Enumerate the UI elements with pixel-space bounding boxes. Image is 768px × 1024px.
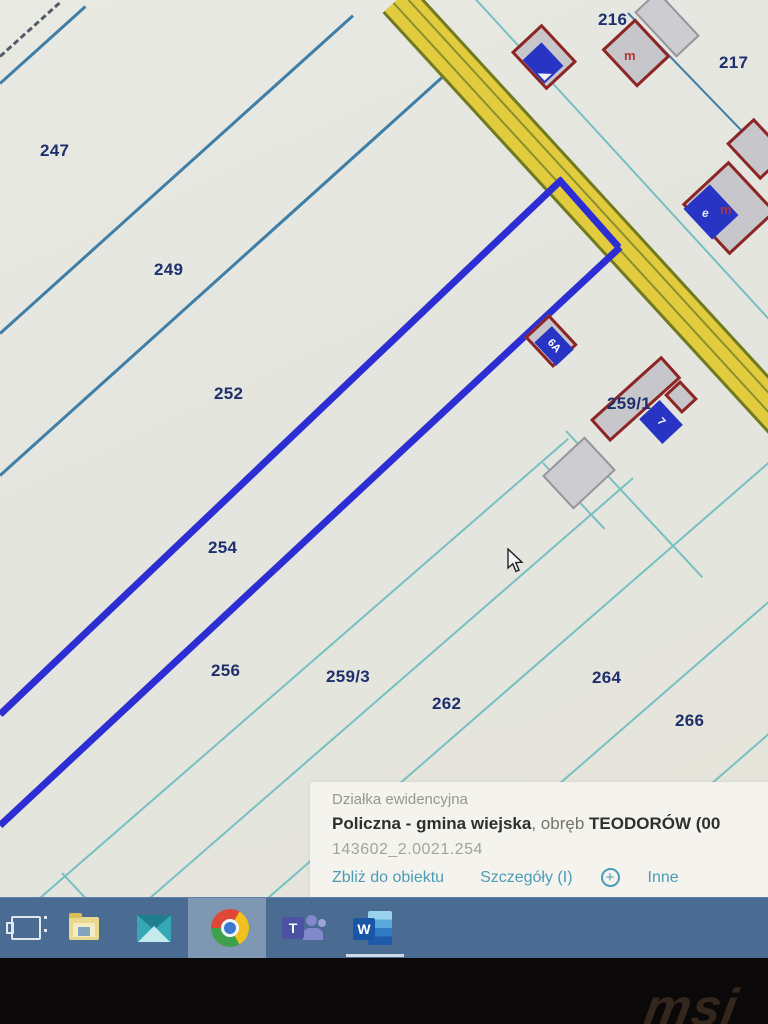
parcel-label-216: 216 [598, 10, 627, 30]
boundary-line-dashed [0, 2, 60, 58]
mail-button[interactable] [132, 898, 176, 958]
parcel-label-266: 266 [675, 711, 704, 731]
municipality-name: Policzna - gmina wiejska [332, 814, 531, 833]
boundary-line [0, 15, 354, 335]
msi-logo: msi [640, 978, 743, 1024]
parcel-id: 143602_2.0021.254 [332, 841, 768, 859]
mail-icon [137, 915, 171, 942]
task-view-icon [11, 916, 41, 940]
file-explorer-icon [69, 917, 99, 940]
cadastral-map[interactable]: m e m 6A 7 247 249 252 254 256 259/3 262… [0, 0, 768, 897]
chrome-icon [211, 909, 249, 947]
building-unclassified [542, 436, 616, 509]
teams-button[interactable]: T [280, 898, 328, 958]
building-function-label: e [702, 206, 709, 220]
parcel-type-label: Działka ewidencyjna [332, 791, 768, 808]
file-explorer-button[interactable] [62, 898, 106, 958]
parcel-label-259-3: 259/3 [326, 667, 370, 687]
obreb-label: , obręb [531, 814, 589, 833]
teams-icon: T [282, 910, 326, 946]
teams-person-head [306, 915, 317, 926]
word-button[interactable]: W [350, 898, 398, 958]
panel-actions: Zbliż do obiektu Szczegóły (I) + Inne [332, 868, 768, 887]
folder-document [78, 927, 90, 936]
boundary-line-perpendicular [61, 872, 112, 897]
parcel-label-259-1: 259/1 [607, 394, 651, 414]
laptop-screen: m e m 6A 7 247 249 252 254 256 259/3 262… [0, 0, 768, 1024]
parcel-label-247: 247 [40, 141, 69, 161]
obreb-name: TEODORÓW (00 [589, 814, 720, 833]
details-link[interactable]: Szczegóły (I) [480, 869, 572, 887]
parcel-label-217: 217 [719, 53, 748, 73]
teams-person-body [303, 928, 323, 940]
municipality-line: Policzna - gmina wiejska, obręb TEODORÓW… [332, 814, 768, 834]
building-function-label: m [720, 202, 732, 217]
teams-person2-head [318, 919, 326, 927]
parcel-label-256: 256 [211, 661, 240, 681]
parcel-info-panel: Działka ewidencyjna Policzna - gmina wie… [310, 782, 768, 897]
parcel-label-262: 262 [432, 694, 461, 714]
laptop-bezel: msi [0, 958, 768, 1024]
parcel-label-264: 264 [592, 668, 621, 688]
parcel-label-249: 249 [154, 260, 183, 280]
add-icon[interactable]: + [601, 868, 620, 887]
building-mark-icon [538, 67, 552, 81]
building-function-label: m [624, 48, 636, 63]
more-link[interactable]: Inne [648, 869, 679, 887]
zoom-to-object-link[interactable]: Zbliż do obiektu [332, 869, 444, 887]
word-icon: W [353, 910, 395, 946]
parcel-label-252: 252 [214, 384, 243, 404]
parcel-label-254: 254 [208, 538, 237, 558]
mouse-cursor [506, 548, 528, 574]
word-letter: W [353, 918, 375, 940]
windows-taskbar: T W [0, 897, 768, 958]
task-view-button[interactable] [4, 898, 48, 958]
chrome-button[interactable] [208, 898, 252, 958]
teams-letter: T [282, 917, 304, 939]
word-running-indicator [346, 954, 404, 957]
